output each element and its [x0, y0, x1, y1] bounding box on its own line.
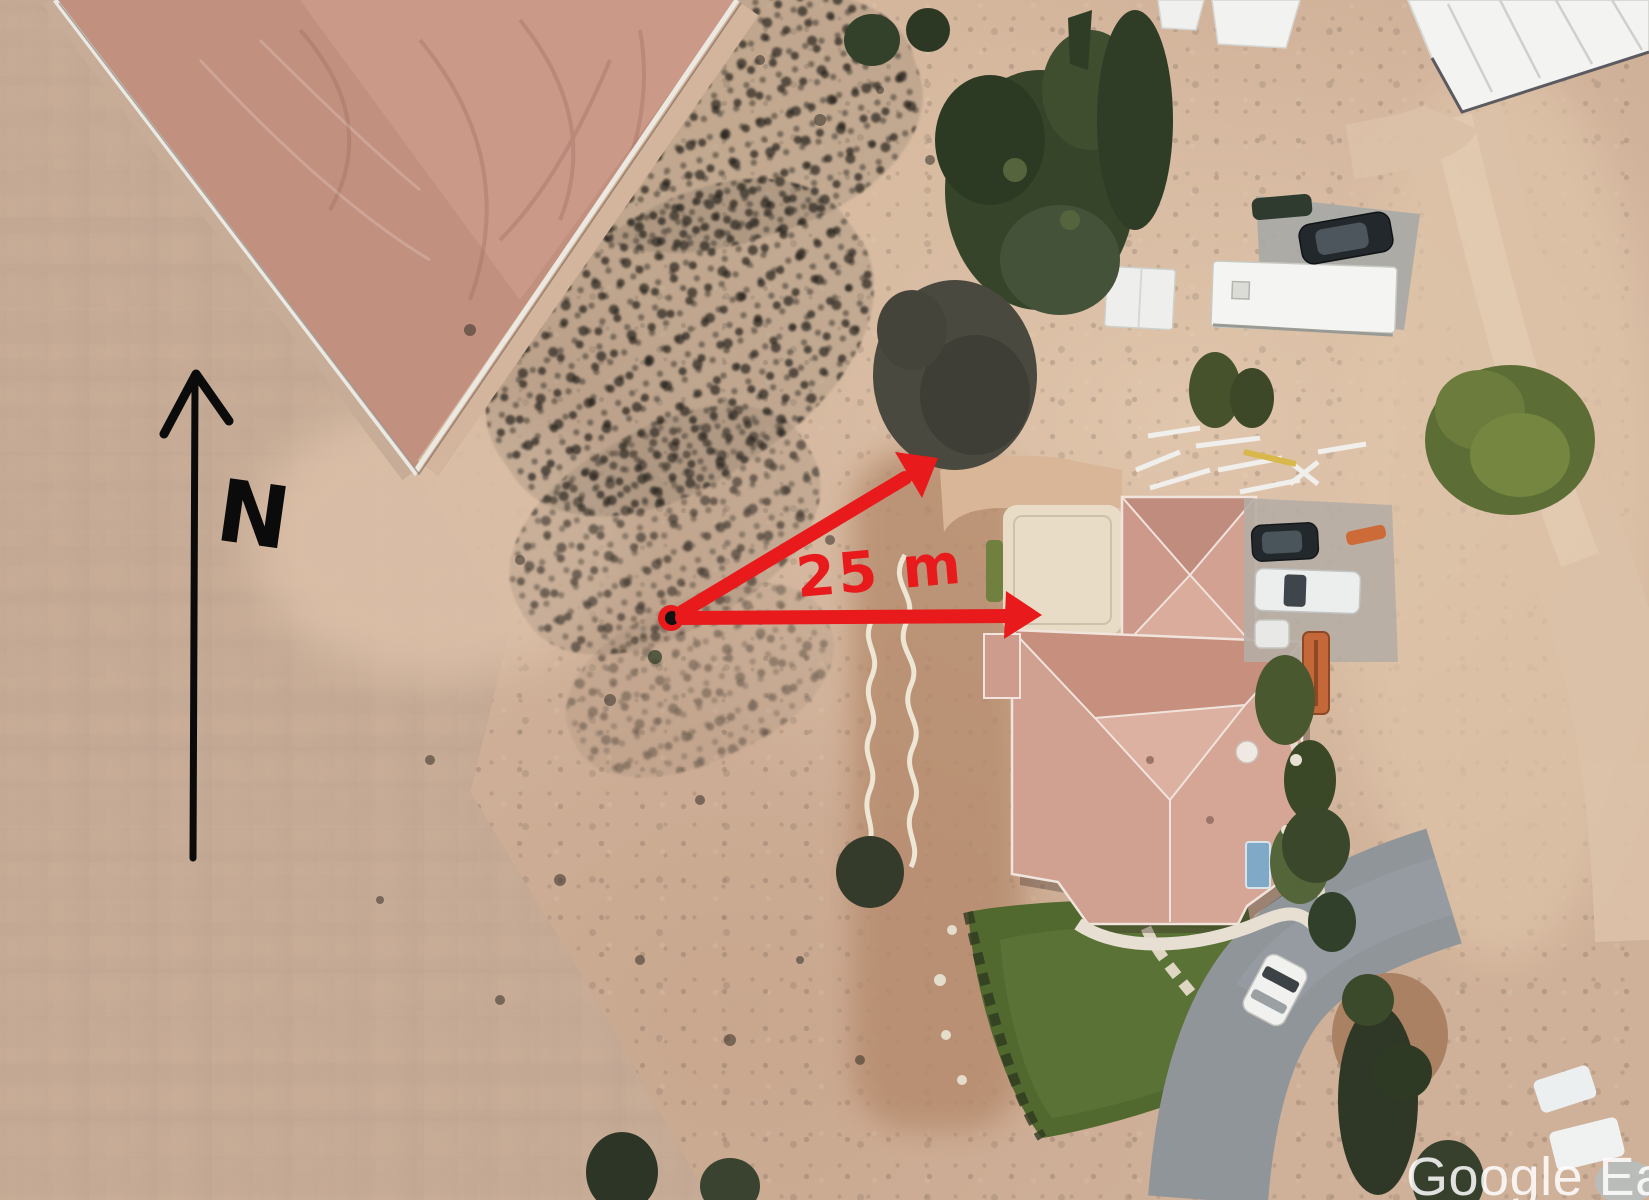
- arrow-east: [682, 616, 1010, 618]
- north-label: N: [211, 461, 296, 570]
- north-arrow: N: [164, 374, 296, 858]
- satellite-map: N 25 m Google Ea: [0, 0, 1649, 1200]
- measurement-annotation: 25 m: [658, 452, 1042, 639]
- annotations: N 25 m: [0, 0, 1649, 1200]
- google-earth-watermark: Google Ea: [1406, 1146, 1649, 1200]
- distance-label: 25 m: [794, 532, 967, 611]
- arrowhead-east: [1004, 591, 1042, 639]
